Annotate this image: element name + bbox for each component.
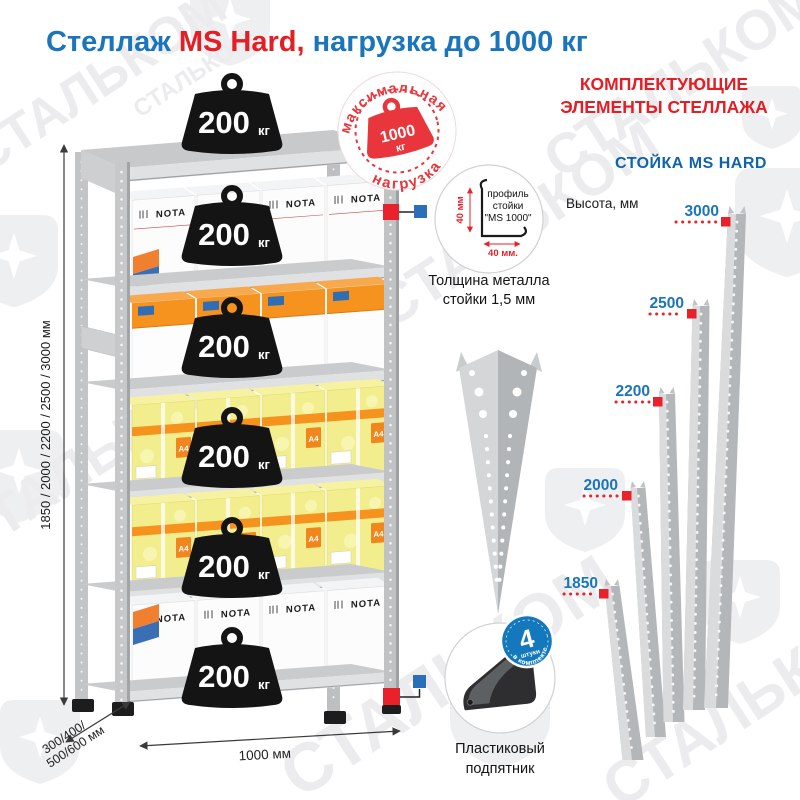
post-section-title: СТОЙКА MS HARD [573, 155, 800, 173]
box-size-label: А4 [373, 529, 384, 539]
box-size-label: А4 [373, 429, 384, 439]
plastic-foot-caption: Пластиковый подпятник [419, 739, 581, 779]
profile-callout-circle: 40 мм 40 мм. профиль стойки "MS 1000" [435, 165, 543, 273]
box-size-label: А4 [308, 534, 319, 544]
weight-unit: кг [258, 235, 271, 250]
components-header-line1: КОМПЛЕКТУЮЩИЕ [545, 73, 783, 96]
plastic-foot-caption-line1: Пластиковый [419, 739, 581, 759]
metal-thickness-line2: стойки 1,5 мм [408, 291, 570, 310]
weight-unit: кг [258, 677, 271, 692]
box-size-label: А4 [308, 434, 319, 444]
title-brand: Стеллаж [46, 26, 179, 58]
weight-value: 200 [198, 217, 250, 252]
post-2500 [683, 299, 710, 710]
post-heights-diagram: 3000 2500 2200 2000 1850 [564, 203, 746, 760]
weight-value: 200 [198, 549, 250, 584]
components-header-line2: ЭЛЕМЕНТЫ СТЕЛЛАЖА [545, 96, 783, 119]
box-brand-label: NOTA [286, 197, 316, 210]
weight-value: 200 [198, 105, 250, 140]
box-brand-label: NOTA [351, 193, 381, 206]
profile-caption: профиль [487, 188, 528, 200]
width-dimension-label: 1000 мм [238, 746, 291, 764]
title-rest: нагрузка до 1000 кг [305, 26, 588, 58]
post-height-label: 1850 [564, 575, 598, 592]
box-brand-label: NOTA [221, 607, 251, 620]
page-title: Стеллаж MS Hard, нагрузка до 1000 кг [46, 26, 588, 59]
post-height-label: 2500 [650, 295, 684, 312]
post-2200 [659, 387, 685, 722]
profile-caption: "MS 1000" [484, 213, 532, 224]
box-brand-label: NOTA [286, 602, 316, 615]
profile-dim-horizontal: 40 мм. [488, 248, 518, 259]
weight-unit: кг [258, 123, 271, 138]
profile-caption: стойки [493, 201, 524, 212]
weight-value: 200 [198, 329, 250, 364]
angle-post-illustration [456, 350, 542, 614]
box-brand-label: NOTA [156, 612, 186, 625]
plastic-foot-caption-line2: подпятник [419, 759, 581, 779]
height-caption: Высота, мм [566, 196, 638, 211]
title-model: MS Hard, [179, 26, 305, 58]
box-size-label: А4 [178, 444, 189, 454]
infographic-artwork: СТАЛЬКОМ СТАЛЬКОМ СТАЛЬКОМ СТАЛЬКОМ СТАЛ… [0, 0, 800, 800]
weight-value: 200 [198, 439, 250, 474]
box-size-label: А4 [178, 544, 189, 554]
profile-dim-vertical: 40 мм [455, 196, 466, 223]
weight-unit: кг [258, 347, 271, 362]
post-height-label: 3000 [685, 203, 719, 220]
post-height-label: 2000 [584, 477, 618, 494]
weight-unit: кг [258, 457, 271, 472]
metal-thickness-line1: Толщина металла [408, 272, 570, 291]
components-header: КОМПЛЕКТУЮЩИЕ ЭЛЕМЕНТЫ СТЕЛЛАЖА [545, 73, 783, 119]
box-brand-label: NOTA [351, 598, 381, 611]
metal-thickness-note: Толщина металла стойки 1,5 мм [408, 272, 570, 310]
post-profile-callout-marker [383, 204, 427, 220]
height-dimension-label: 1850 / 2000 / 2200 / 2500 / 3000 мм [38, 320, 53, 529]
product-infographic: СТАЛЬКОМ СТАЛЬКОМ СТАЛЬКОМ СТАЛЬКОМ СТАЛ… [0, 0, 800, 800]
weight-value: 200 [198, 659, 250, 694]
weight-unit: кг [258, 567, 271, 582]
box-brand-label: NOTA [156, 207, 186, 220]
post-2000 [631, 481, 667, 737]
post-height-label: 2200 [616, 383, 650, 400]
